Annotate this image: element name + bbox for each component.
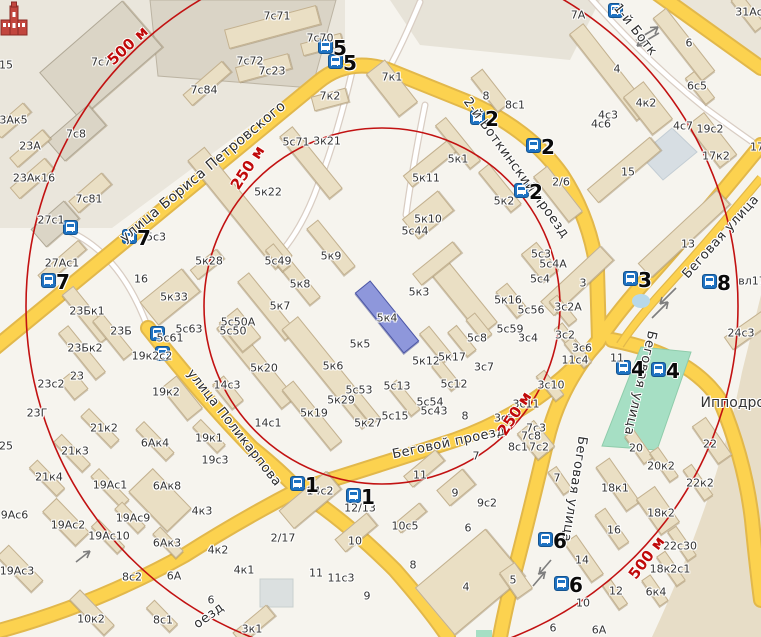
- bus-icon[interactable]: [155, 346, 170, 361]
- hippodrome-icon[interactable]: [0, 0, 28, 40]
- bus-icon[interactable]: [651, 362, 666, 377]
- bus-icon[interactable]: [538, 532, 553, 547]
- bus-icon[interactable]: [150, 326, 165, 341]
- bus-icon[interactable]: [290, 476, 305, 491]
- bus-icon[interactable]: [318, 39, 333, 54]
- bus-icon[interactable]: [554, 576, 569, 591]
- bus-icon[interactable]: [514, 183, 529, 198]
- bus-icon[interactable]: [63, 220, 78, 235]
- bus-icon[interactable]: [623, 271, 638, 286]
- bus-icon[interactable]: [526, 138, 541, 153]
- bus-icon[interactable]: [122, 229, 137, 244]
- bus-icon[interactable]: [470, 110, 485, 125]
- bus-icon[interactable]: [41, 273, 56, 288]
- bus-icon[interactable]: [328, 54, 343, 69]
- bus-icon[interactable]: [608, 3, 623, 18]
- bus-icon[interactable]: [346, 488, 361, 503]
- bus-icon[interactable]: [702, 274, 717, 289]
- map-viewport[interactable]: 7с717с707с727с237с847с77с87с8123Ак523А23…: [0, 0, 761, 637]
- bus-stops-layer: [0, 0, 761, 637]
- bus-icon[interactable]: [616, 360, 631, 375]
